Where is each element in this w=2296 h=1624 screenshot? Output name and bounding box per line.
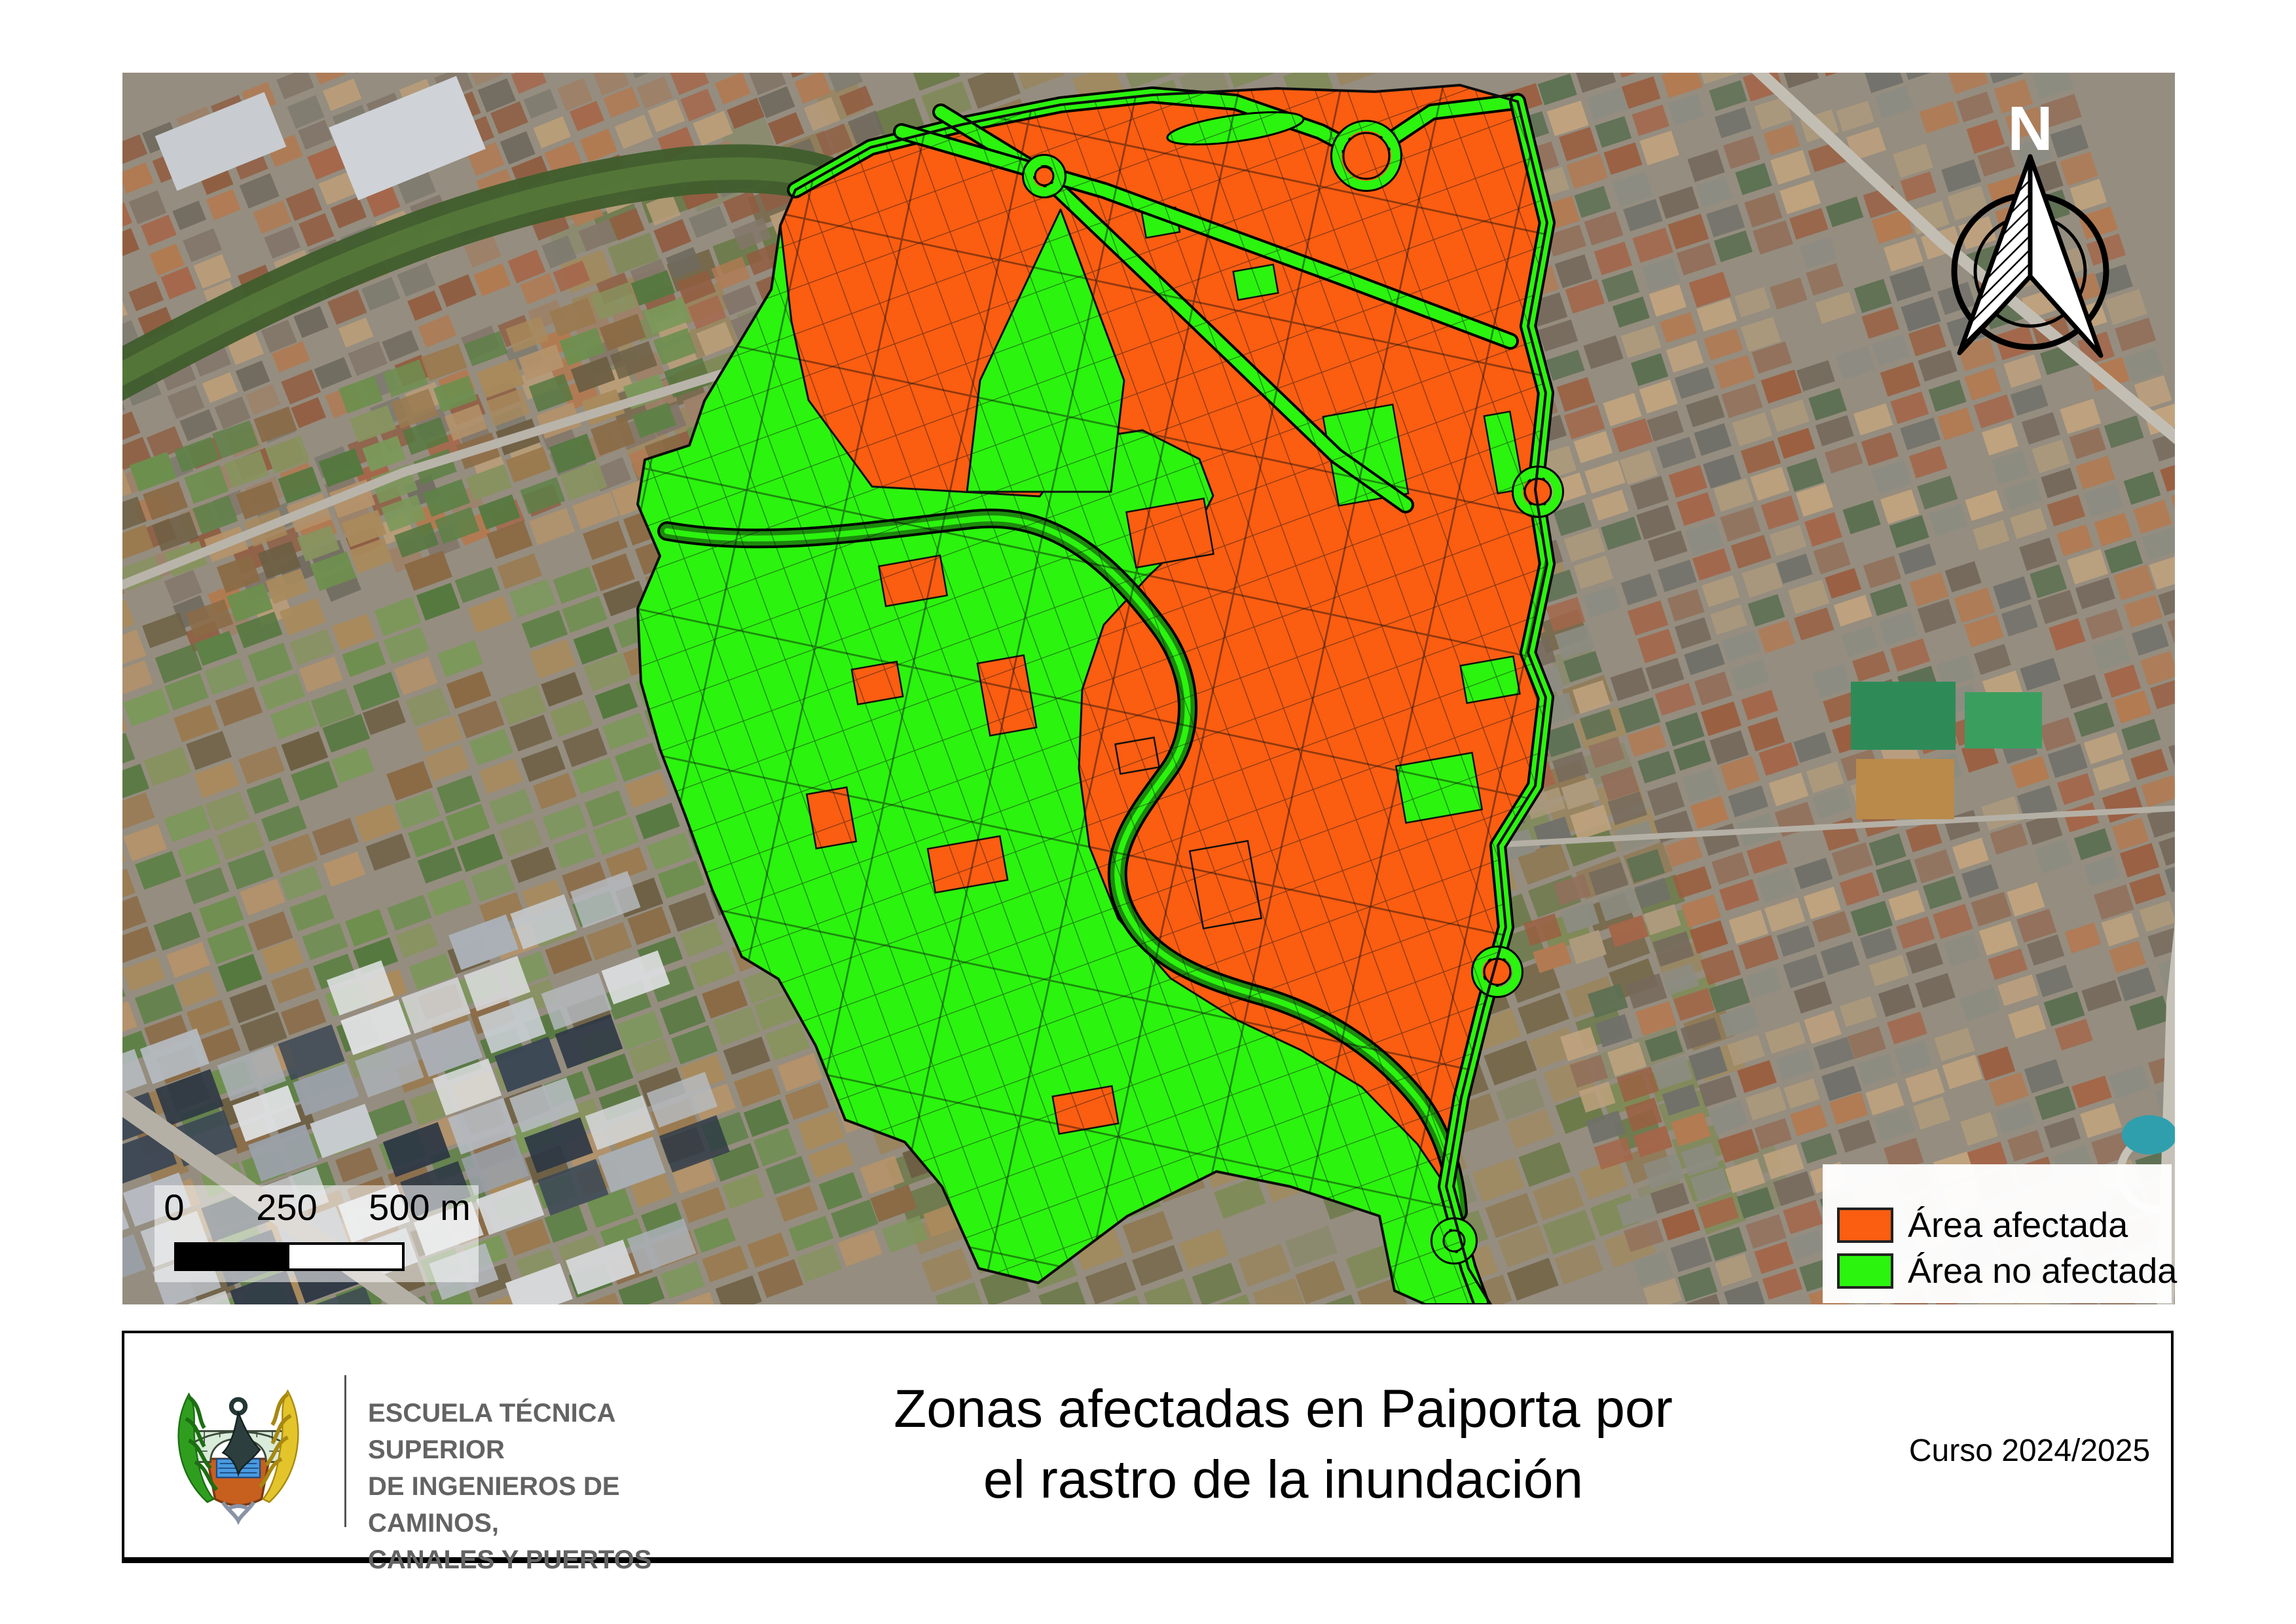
map-legend: Área afectada Área no afectada — [1823, 1164, 2172, 1303]
etsiccp-logo — [161, 1366, 316, 1527]
scale-bar-graphic — [174, 1242, 405, 1271]
school-name-line: DE INGENIEROS DE CAMINOS, — [368, 1468, 735, 1541]
scale-bar-labels: 0 250 500 m — [155, 1190, 479, 1225]
legend-label: Área no afectada — [1908, 1251, 2177, 1291]
legend-label: Área afectada — [1908, 1205, 2128, 1246]
north-label: N — [2007, 94, 2052, 164]
school-name-line: ESCUELA TÉCNICA SUPERIOR — [368, 1395, 735, 1468]
sports-field — [1851, 682, 1956, 750]
map-title-line: el rastro de la inundación — [714, 1445, 1853, 1515]
map-title: Zonas afectadas en Paiporta por el rastr… — [714, 1374, 1853, 1515]
map-sheet: N 0 250 500 m Área afectada Área no afec… — [0, 0, 2296, 1624]
scale-bar-segment-filled — [177, 1245, 289, 1268]
school-name-line: CANALES Y PUERTOS — [368, 1541, 735, 1578]
map-canvas: N — [122, 73, 2175, 1304]
map-title-line: Zonas afectadas en Paiporta por — [714, 1374, 1853, 1445]
title-block: ESCUELA TÉCNICA SUPERIOR DE INGENIEROS D… — [122, 1331, 2174, 1563]
satellite-map-image: N — [122, 73, 2175, 1304]
scale-tick-0: 0 — [164, 1190, 184, 1225]
legend-swatch-not-affected — [1837, 1253, 1893, 1289]
pond — [2122, 1115, 2175, 1154]
legend-item-not-affected: Área no afectada — [1837, 1252, 2177, 1290]
scale-tick-250: 250 — [256, 1190, 317, 1225]
clay-field — [1856, 759, 1954, 819]
sports-field — [1965, 692, 2042, 748]
course-label: Curso 2024/2025 — [1892, 1433, 2167, 1469]
scale-bar: 0 250 500 m — [155, 1185, 479, 1282]
scale-tick-500: 500 m — [369, 1190, 471, 1225]
scale-bar-segment-empty — [289, 1245, 402, 1268]
legend-item-affected: Área afectada — [1837, 1206, 2128, 1244]
logo-divider — [344, 1375, 346, 1527]
school-name: ESCUELA TÉCNICA SUPERIOR DE INGENIEROS D… — [368, 1395, 735, 1578]
legend-swatch-affected — [1837, 1208, 1893, 1243]
